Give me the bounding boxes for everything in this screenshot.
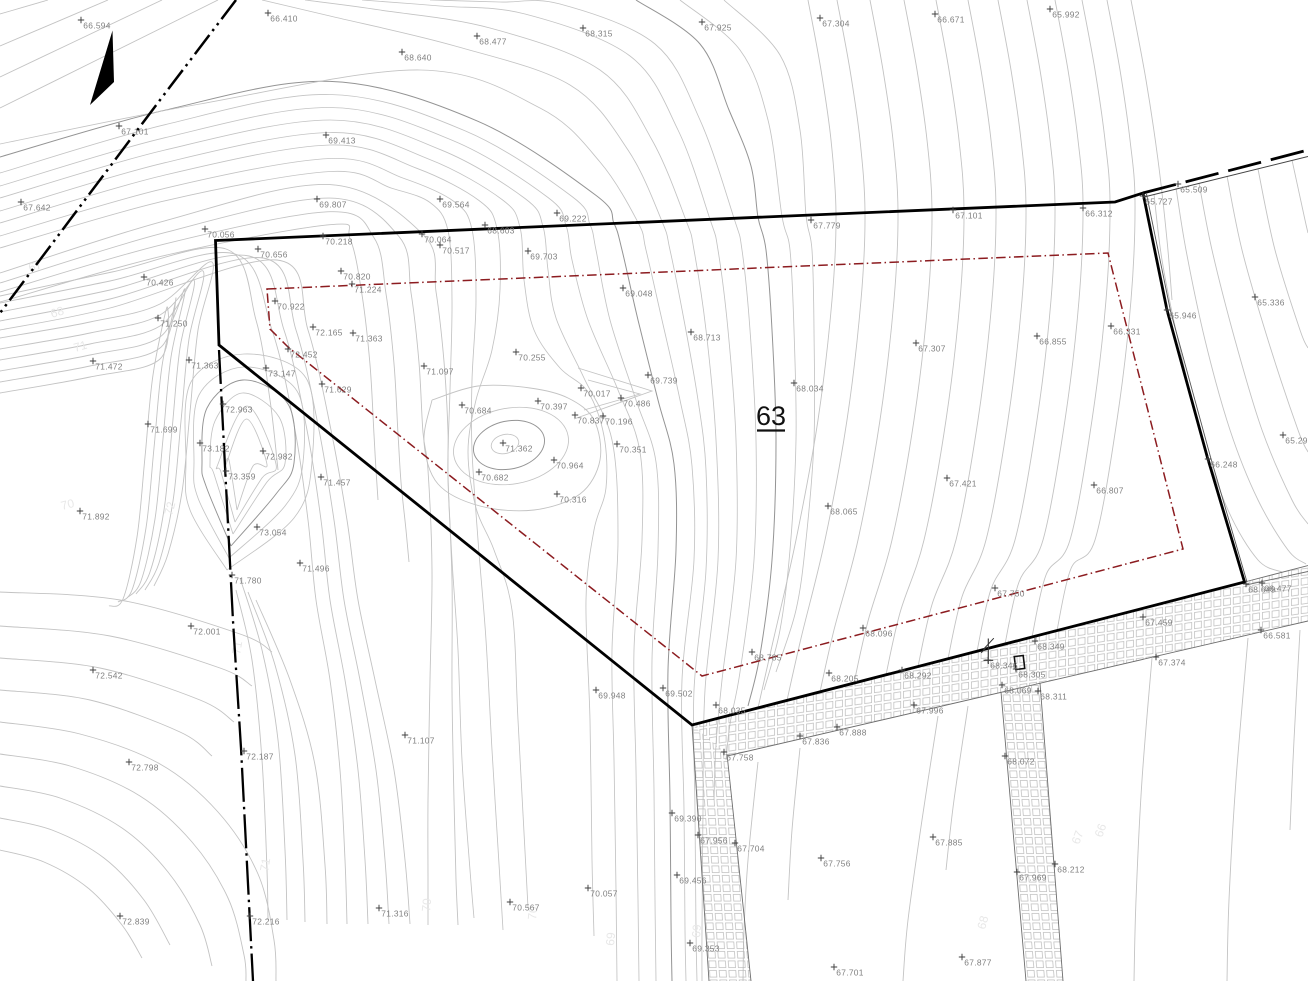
svg-text:68.785: 68.785 (754, 652, 781, 662)
svg-text:71.780: 71.780 (234, 575, 261, 585)
svg-text:66.581: 66.581 (1263, 630, 1290, 640)
svg-text:66.807: 66.807 (1096, 485, 1123, 495)
svg-text:69.048: 69.048 (625, 288, 652, 298)
svg-text:67.101: 67.101 (955, 210, 982, 220)
svg-text:65.946: 65.946 (1169, 310, 1196, 320)
svg-text:68.477: 68.477 (479, 36, 506, 46)
svg-text:71.224: 71.224 (354, 284, 381, 294)
svg-text:67.779: 67.779 (813, 220, 840, 230)
svg-text:66.312: 66.312 (1085, 208, 1112, 218)
svg-text:71.629: 71.629 (324, 384, 351, 394)
svg-text:69: 69 (689, 923, 704, 938)
svg-text:70.064: 70.064 (424, 234, 451, 244)
svg-text:70.684: 70.684 (464, 405, 491, 415)
svg-text:70.017: 70.017 (583, 388, 610, 398)
svg-text:70.656: 70.656 (260, 249, 287, 259)
svg-text:66.855: 66.855 (1039, 336, 1066, 346)
svg-text:70.567: 70.567 (512, 902, 539, 912)
svg-text:67.758: 67.758 (726, 752, 753, 762)
svg-text:68.292: 68.292 (904, 670, 931, 680)
svg-text:68.603: 68.603 (487, 225, 514, 235)
svg-text:70.397: 70.397 (540, 401, 567, 411)
svg-text:66.410: 66.410 (270, 13, 297, 23)
svg-text:67.374: 67.374 (1158, 657, 1185, 667)
svg-text:73.147: 73.147 (268, 368, 295, 378)
svg-text:67.877: 67.877 (964, 957, 991, 967)
svg-text:67.459: 67.459 (1145, 617, 1172, 627)
svg-text:71.363: 71.363 (191, 360, 218, 370)
svg-text:70.682: 70.682 (481, 472, 508, 482)
svg-text:70.426: 70.426 (146, 277, 173, 287)
svg-text:68.640: 68.640 (404, 52, 431, 62)
svg-text:72.001: 72.001 (193, 626, 220, 636)
svg-text:68.205: 68.205 (831, 673, 858, 683)
svg-text:73.359: 73.359 (228, 471, 255, 481)
svg-text:67.307: 67.307 (918, 343, 945, 353)
svg-text:72.982: 72.982 (265, 451, 292, 461)
svg-text:70.056: 70.056 (207, 229, 234, 239)
svg-text:67.969: 67.969 (1019, 872, 1046, 882)
svg-text:69.353: 69.353 (692, 943, 719, 953)
svg-text:72.165: 72.165 (315, 327, 342, 337)
svg-text:68.349: 68.349 (1037, 641, 1064, 651)
svg-text:72.452: 72.452 (290, 349, 317, 359)
svg-text:69.739: 69.739 (650, 375, 677, 385)
svg-text:66.331: 66.331 (1113, 326, 1140, 336)
svg-text:68.311: 68.311 (1040, 691, 1067, 701)
svg-text:68.069: 68.069 (1004, 685, 1031, 695)
svg-text:67.701: 67.701 (836, 967, 863, 977)
svg-text:70.837: 70.837 (577, 415, 604, 425)
svg-text:68.713: 68.713 (693, 332, 720, 342)
svg-text:65.992: 65.992 (1052, 9, 1079, 19)
svg-text:67.756: 67.756 (823, 858, 850, 868)
svg-text:67.304: 67.304 (822, 18, 849, 28)
svg-text:65.336: 65.336 (1257, 297, 1284, 307)
svg-text:71.892: 71.892 (82, 511, 109, 521)
svg-text:69.456: 69.456 (679, 875, 706, 885)
svg-text:70.922: 70.922 (277, 301, 304, 311)
svg-text:72.798: 72.798 (131, 762, 158, 772)
svg-text:69.413: 69.413 (328, 135, 355, 145)
svg-text:72.542: 72.542 (95, 670, 122, 680)
svg-text:67.885: 67.885 (935, 837, 962, 847)
svg-text:71.472: 71.472 (95, 361, 122, 371)
svg-text:71.363: 71.363 (355, 333, 382, 343)
svg-text:71.107: 71.107 (407, 735, 434, 745)
svg-text:71.699: 71.699 (150, 424, 177, 434)
svg-text:70.057: 70.057 (590, 888, 617, 898)
svg-text:71.496: 71.496 (302, 563, 329, 573)
svg-text:73.054: 73.054 (259, 527, 286, 537)
svg-text:68.346: 68.346 (990, 660, 1017, 670)
svg-text:73.182: 73.182 (202, 443, 229, 453)
svg-text:65.296: 65.296 (1285, 435, 1308, 445)
svg-text:70.820: 70.820 (343, 271, 370, 281)
svg-text:70.196: 70.196 (605, 416, 632, 426)
svg-text:70.964: 70.964 (556, 460, 583, 470)
svg-text:71: 71 (257, 857, 273, 873)
svg-text:71.316: 71.316 (381, 908, 408, 918)
svg-text:67.704: 67.704 (737, 843, 764, 853)
svg-text:69: 69 (603, 931, 618, 946)
svg-text:70: 70 (419, 897, 434, 912)
svg-text:70.255: 70.255 (518, 352, 545, 362)
svg-text:72.963: 72.963 (225, 404, 252, 414)
svg-text:68.072: 68.072 (1007, 756, 1034, 766)
svg-text:68.305: 68.305 (1018, 669, 1045, 679)
svg-text:66.248: 66.248 (1210, 459, 1237, 469)
svg-text:71.250: 71.250 (160, 318, 187, 328)
svg-text:69.564: 69.564 (442, 199, 469, 209)
svg-text:72.839: 72.839 (122, 916, 149, 926)
svg-text:63: 63 (756, 401, 786, 431)
svg-text:72.216: 72.216 (252, 916, 279, 926)
svg-text:68.212: 68.212 (1057, 864, 1084, 874)
svg-text:67.642: 67.642 (23, 202, 50, 212)
svg-text:66.477: 66.477 (1264, 583, 1291, 593)
svg-text:68.315: 68.315 (585, 28, 612, 38)
svg-text:69.807: 69.807 (319, 199, 346, 209)
svg-text:67.836: 67.836 (802, 736, 829, 746)
svg-text:72.187: 72.187 (246, 751, 273, 761)
svg-text:67.101: 67.101 (121, 126, 148, 136)
svg-text:67.956: 67.956 (700, 835, 727, 845)
svg-text:68.096: 68.096 (865, 628, 892, 638)
svg-text:70.351: 70.351 (619, 444, 646, 454)
svg-text:69.222: 69.222 (559, 213, 586, 223)
svg-text:67.750: 67.750 (997, 588, 1024, 598)
svg-text:71.362: 71.362 (505, 443, 532, 453)
svg-text:67.925: 67.925 (704, 22, 731, 32)
svg-text:69.703: 69.703 (530, 251, 557, 261)
svg-text:69.390: 69.390 (674, 813, 701, 823)
svg-text:67.888: 67.888 (839, 727, 866, 737)
svg-text:65.509: 65.509 (1180, 184, 1207, 194)
svg-text:71.097: 71.097 (426, 366, 453, 376)
svg-text:68.065: 68.065 (830, 506, 857, 516)
svg-text:70.486: 70.486 (623, 398, 650, 408)
svg-text:70.218: 70.218 (325, 236, 352, 246)
svg-text:67.421: 67.421 (949, 478, 976, 488)
svg-text:70.316: 70.316 (559, 494, 586, 504)
svg-text:68.034: 68.034 (796, 383, 823, 393)
svg-text:69.948: 69.948 (598, 690, 625, 700)
svg-text:68.035: 68.035 (718, 705, 745, 715)
svg-text:66.594: 66.594 (83, 20, 110, 30)
svg-text:67.996: 67.996 (916, 705, 943, 715)
svg-text:69.502: 69.502 (665, 688, 692, 698)
svg-text:71.457: 71.457 (323, 477, 350, 487)
svg-text:71: 71 (229, 640, 245, 656)
svg-text:66.671: 66.671 (937, 14, 964, 24)
svg-text:65.727: 65.727 (1145, 196, 1172, 206)
svg-text:70.517: 70.517 (442, 245, 469, 255)
